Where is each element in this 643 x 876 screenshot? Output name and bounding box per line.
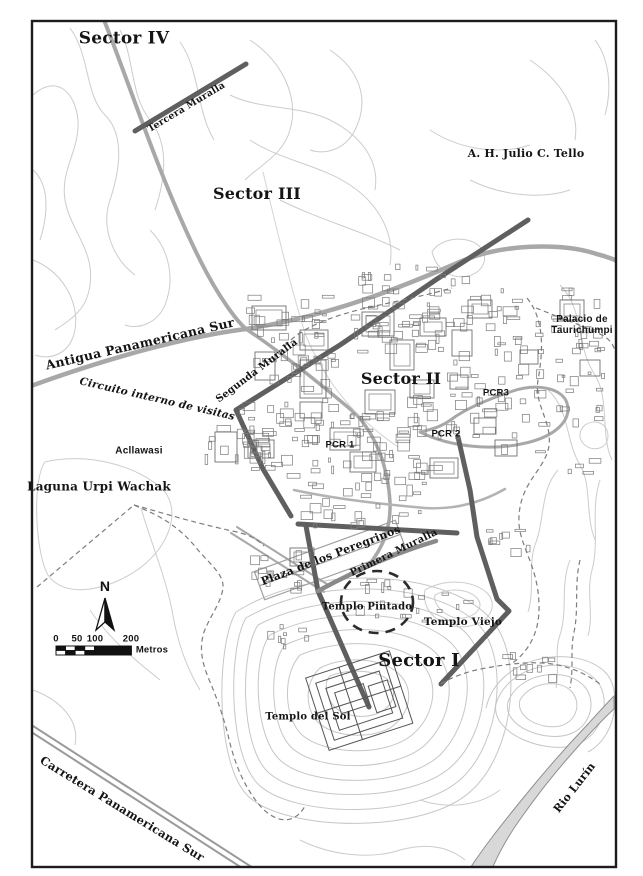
map-frame (32, 21, 616, 867)
wall-tercera-muralla (135, 64, 246, 131)
wall-sector-i-top (298, 524, 457, 533)
walls (135, 64, 528, 707)
map: Sector IVTercera MurallaSector IIIA. H. … (0, 0, 643, 876)
scale-bar (56, 646, 131, 655)
road-north (104, 20, 246, 329)
dashed-boundaries (37, 288, 616, 820)
map-canvas (0, 0, 643, 876)
north-arrow-icon (96, 598, 114, 630)
river-hill-contours (486, 657, 615, 752)
river-rio-lurin (465, 696, 614, 876)
road-carretera-panamericana (26, 725, 260, 876)
wall-segunda-muralla (236, 220, 528, 516)
